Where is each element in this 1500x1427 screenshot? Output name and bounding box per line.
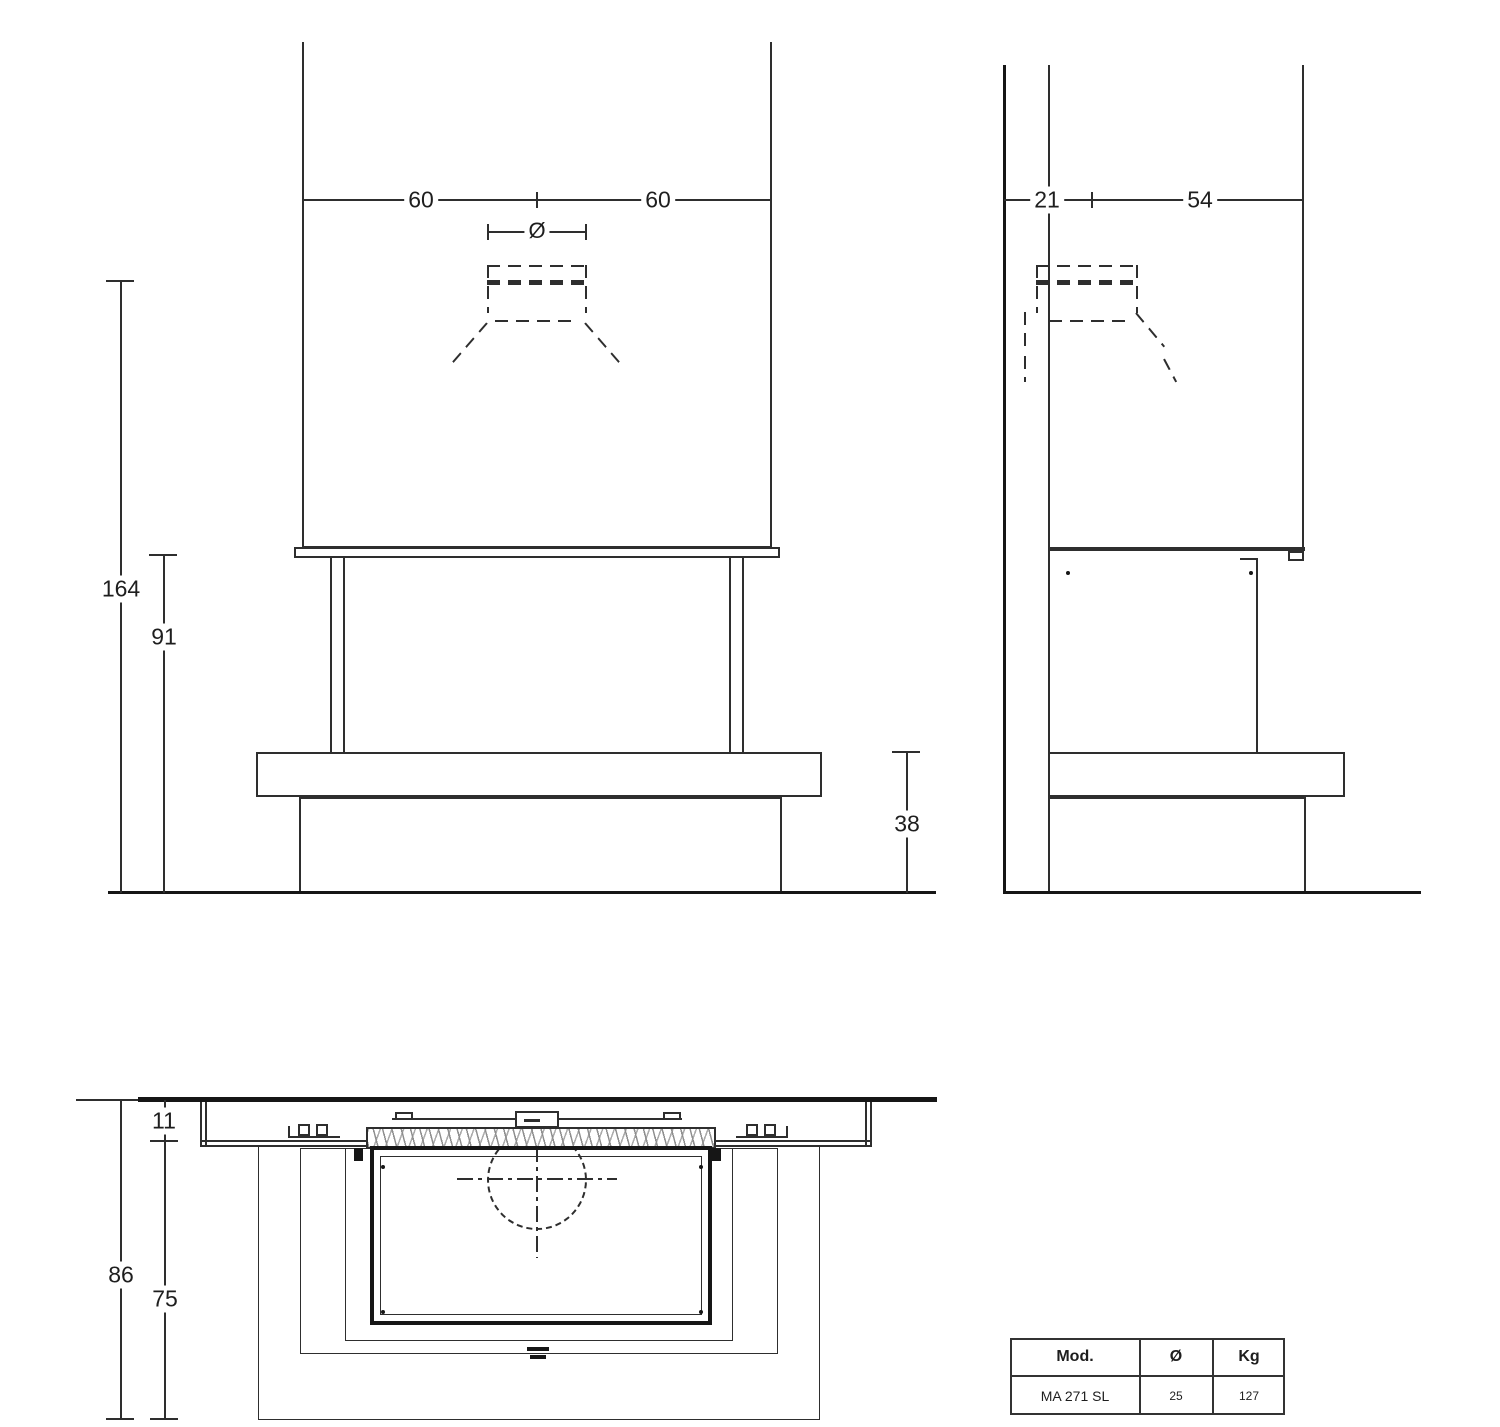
spec-table-header-diameter: Ø <box>1170 1349 1182 1365</box>
spec-table-header-weight: Kg <box>1238 1349 1259 1365</box>
technical-drawing-canvas: 60 60 Ø 164 91 38 <box>0 0 1500 1427</box>
spec-table-header-divider <box>1010 1375 1285 1377</box>
spec-table-col-divider-2 <box>1212 1338 1214 1415</box>
spec-table-value-diameter: 25 <box>1169 1390 1182 1402</box>
spec-table-value-weight: 127 <box>1239 1390 1259 1402</box>
spec-table-header-model: Mod. <box>1056 1349 1093 1365</box>
spec-table: Mod. Ø Kg MA 271 SL 25 127 <box>0 0 1500 1427</box>
spec-table-value-model: MA 271 SL <box>1041 1389 1110 1403</box>
spec-table-col-divider-1 <box>1139 1338 1141 1415</box>
